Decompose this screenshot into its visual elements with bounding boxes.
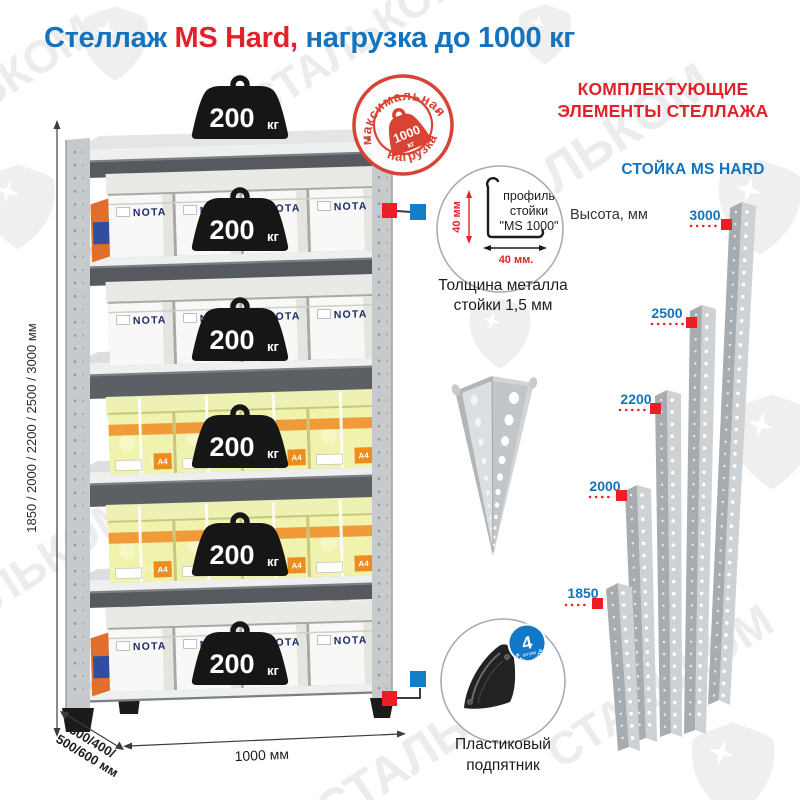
box-brand: NOTA — [334, 200, 368, 213]
weight-value: 200 — [209, 540, 254, 570]
stand-subheading: СТОЙКА MS HARD — [593, 161, 793, 179]
foot-caption-line1: Пластиковый — [455, 736, 551, 753]
paper-format-label: A4 — [291, 453, 302, 462]
post-lineup: Высота, мм — [566, 202, 756, 751]
foot-caption-line2: подпятник — [466, 757, 540, 774]
profile-caption: Толщина металла стойки 1,5 мм — [438, 277, 568, 314]
profile-label-line2: стойки — [510, 204, 548, 218]
blue-marker-square — [410, 204, 426, 220]
paper-format-label: A4 — [157, 457, 168, 466]
profile-dim-horizontal: 40 мм. — [499, 254, 534, 266]
paper-format-label: A4 — [291, 561, 302, 570]
weight-value: 200 — [209, 103, 254, 133]
height-column-label: Высота, мм — [570, 207, 648, 223]
weight-value: 200 — [209, 325, 254, 355]
components-heading-line1: КОМПЛЕКТУЮЩИЕ — [543, 78, 783, 100]
weight-value: 200 — [209, 432, 254, 462]
profile-callout-marker — [382, 203, 426, 220]
profile-label-line3: "MS 1000" — [500, 219, 559, 233]
profile-dim-vertical: 40 мм — [451, 201, 463, 233]
weight-unit: кг — [267, 554, 280, 569]
paper-format-label: A4 — [157, 565, 168, 574]
post-height-label: 2500 — [651, 305, 682, 321]
weight-value: 200 — [209, 649, 254, 679]
blue-marker-square — [410, 671, 426, 687]
weight-unit: кг — [267, 117, 280, 132]
rack-illustration: NOTA NOTA NOTA NOTA NOTA NOTA — [62, 78, 426, 732]
box-brand: NOTA — [334, 634, 368, 647]
weight-unit: кг — [267, 446, 280, 461]
box-brand: NOTA — [133, 314, 167, 327]
paper-format-label: A4 — [358, 451, 369, 460]
title-part-blue1: Стеллаж — [44, 22, 174, 54]
height-options-dimension: 1850 / 2000 / 2200 / 2500 / 3000 мм — [24, 323, 39, 532]
components-heading-line2: ЭЛЕМЕНТЫ СТЕЛЛАЖА — [543, 100, 783, 122]
title-part-blue2: нагрузка до 1000 кг — [298, 22, 575, 54]
width-dimension: 1000 мм — [234, 746, 289, 764]
product-sheet: { "title": { "part1": "Стеллаж ", "part2… — [0, 0, 800, 800]
profile-caption-line2: стойки 1,5 мм — [454, 297, 553, 314]
box-brand: NOTA — [334, 308, 368, 321]
weight-unit: кг — [267, 229, 280, 244]
box-brand: NOTA — [133, 640, 167, 653]
corner-post-3d — [450, 376, 538, 556]
post-height-label: 2200 — [620, 391, 651, 407]
plastic-foot-circle: 4 штуки в комплекте — [441, 619, 565, 743]
box-brand: NOTA — [133, 206, 167, 219]
weight-unit: кг — [267, 663, 280, 678]
title-part-red: MS Hard, — [174, 22, 297, 54]
rack-front-left-post — [62, 138, 94, 732]
components-heading: КОМПЛЕКТУЮЩИЕ ЭЛЕМЕНТЫ СТЕЛЛАЖА — [543, 78, 783, 123]
paper-format-label: A4 — [358, 559, 369, 568]
profile-label-line1: профиль — [503, 189, 555, 203]
red-marker-square — [382, 203, 397, 218]
weight-unit: кг — [267, 339, 280, 354]
post-height-label: 3000 — [689, 207, 720, 223]
profile-caption-line1: Толщина металла — [438, 277, 568, 294]
red-marker-square — [382, 691, 397, 706]
weight-value: 200 — [209, 215, 254, 245]
page-title: Стеллаж MS Hard, нагрузка до 1000 кг — [44, 22, 575, 55]
profile-detail-circle: 40 мм 40 мм. профиль стойки "MS 1000" — [437, 166, 563, 292]
foot-caption: Пластиковый подпятник — [455, 736, 551, 774]
